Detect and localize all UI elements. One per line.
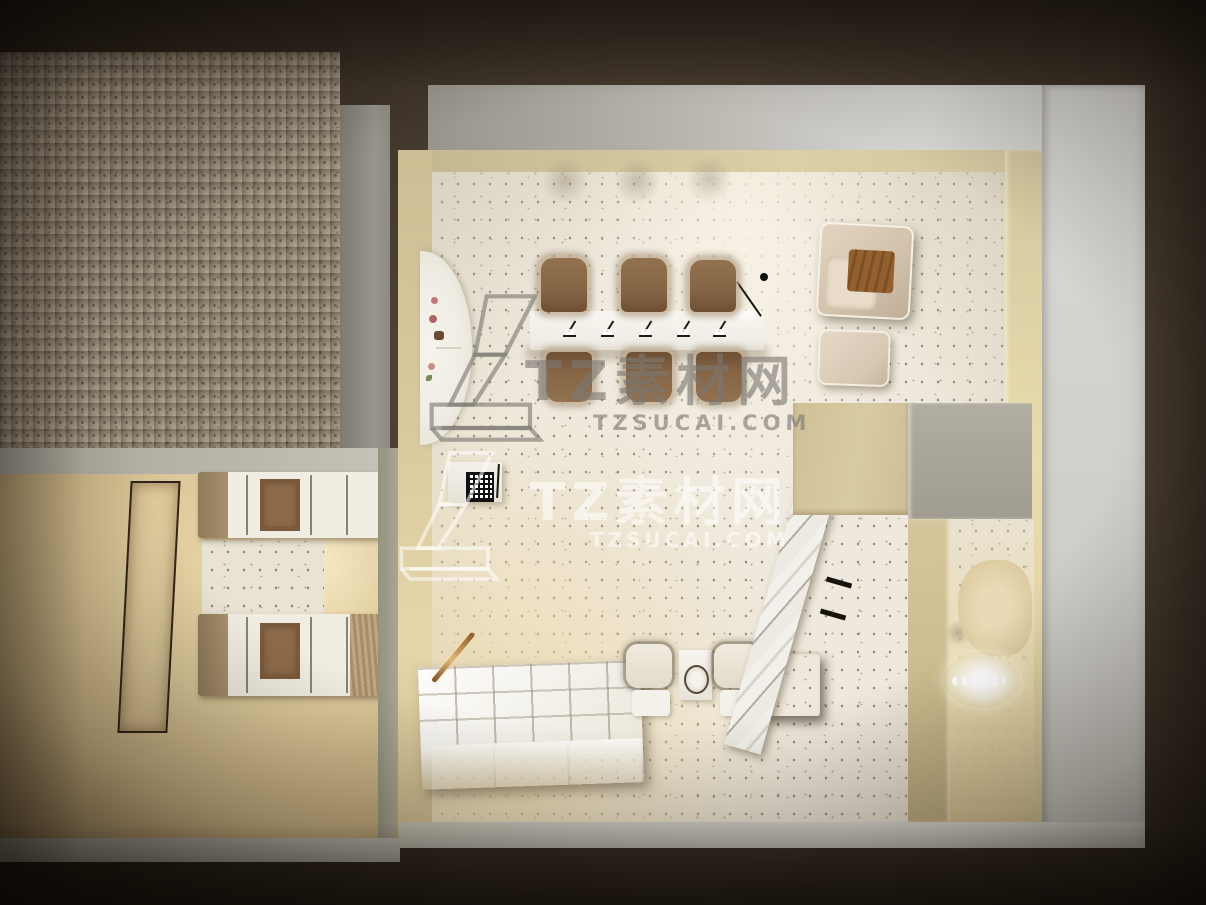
bed-fur-throw: [350, 472, 380, 538]
client-chair: [690, 260, 736, 312]
display-shelf-top: [418, 660, 643, 746]
leaf-icon: [426, 375, 432, 381]
client-chair: [546, 352, 592, 402]
bed-seam: [346, 475, 348, 536]
client-chair: [541, 258, 587, 312]
bed-fur-throw: [350, 614, 380, 696]
wall-shadow-circle: [686, 156, 732, 202]
salon-outer-wall-right: [1042, 85, 1145, 845]
bed-cushion: [260, 623, 300, 679]
waiting-chair-seat: [632, 690, 670, 716]
salon-outer-wall-top: [428, 85, 1145, 150]
salon-bottom-wall: [400, 822, 1145, 848]
room-separator-wall: [378, 448, 400, 838]
desk-lamp-icon: [676, 320, 692, 338]
flower-icon: [431, 297, 438, 304]
massage-room-top-wall: [0, 448, 400, 474]
massage-room-bottom-wall: [0, 838, 400, 862]
mirror-side-table: [679, 650, 712, 700]
roof-edge-wall: [340, 105, 390, 448]
bed-seam: [310, 617, 312, 692]
client-chair: [621, 258, 667, 312]
render-canvas: TZ素材网 TZSUCAI.COM TZ素材网 TZSUCAI.COM: [0, 0, 1206, 905]
decor-pot-icon: [434, 331, 444, 340]
partition-beige-face: [793, 403, 908, 515]
pedicure-chair: [958, 560, 1032, 656]
flower-icon: [429, 315, 437, 323]
terrazzo-walkway: [202, 540, 324, 614]
desk-lamp-icon: [638, 320, 654, 338]
armchair-throw-blanket: [847, 249, 895, 293]
bed-seam: [246, 475, 248, 536]
client-chair: [626, 352, 672, 402]
waiting-chair: [626, 644, 672, 688]
flower-icon: [428, 363, 435, 370]
wall-shadow-circle: [614, 158, 660, 204]
desk-lamp-icon: [712, 320, 728, 338]
round-mirror-icon: [684, 665, 709, 694]
bed-headrest: [198, 614, 228, 696]
bed-seam: [246, 617, 248, 692]
lounge-armchair: [816, 222, 915, 321]
roof-panel-texture: [0, 52, 340, 448]
massage-bed: [198, 614, 380, 696]
display-shelf-front: [421, 738, 644, 790]
qr-code: [466, 472, 494, 502]
bed-cushion: [260, 479, 300, 531]
pedicure-nook-wall: [908, 519, 950, 822]
polish-bottles-icon: [952, 676, 1006, 686]
desk-lamp-icon: [562, 320, 578, 338]
display-shelf: [418, 660, 644, 790]
bed-headrest: [198, 472, 228, 538]
shelf-ledge: [436, 347, 462, 349]
client-chair: [696, 352, 742, 402]
ottoman: [817, 329, 891, 387]
wall-shadow-circle: [542, 158, 588, 204]
bed-seam: [346, 617, 348, 692]
massage-bed: [198, 472, 380, 538]
bed-seam: [310, 475, 312, 536]
partition-gray-cap: [908, 403, 1032, 519]
task-lamp-joint-icon: [760, 273, 768, 281]
desk-lamp-icon: [600, 320, 616, 338]
